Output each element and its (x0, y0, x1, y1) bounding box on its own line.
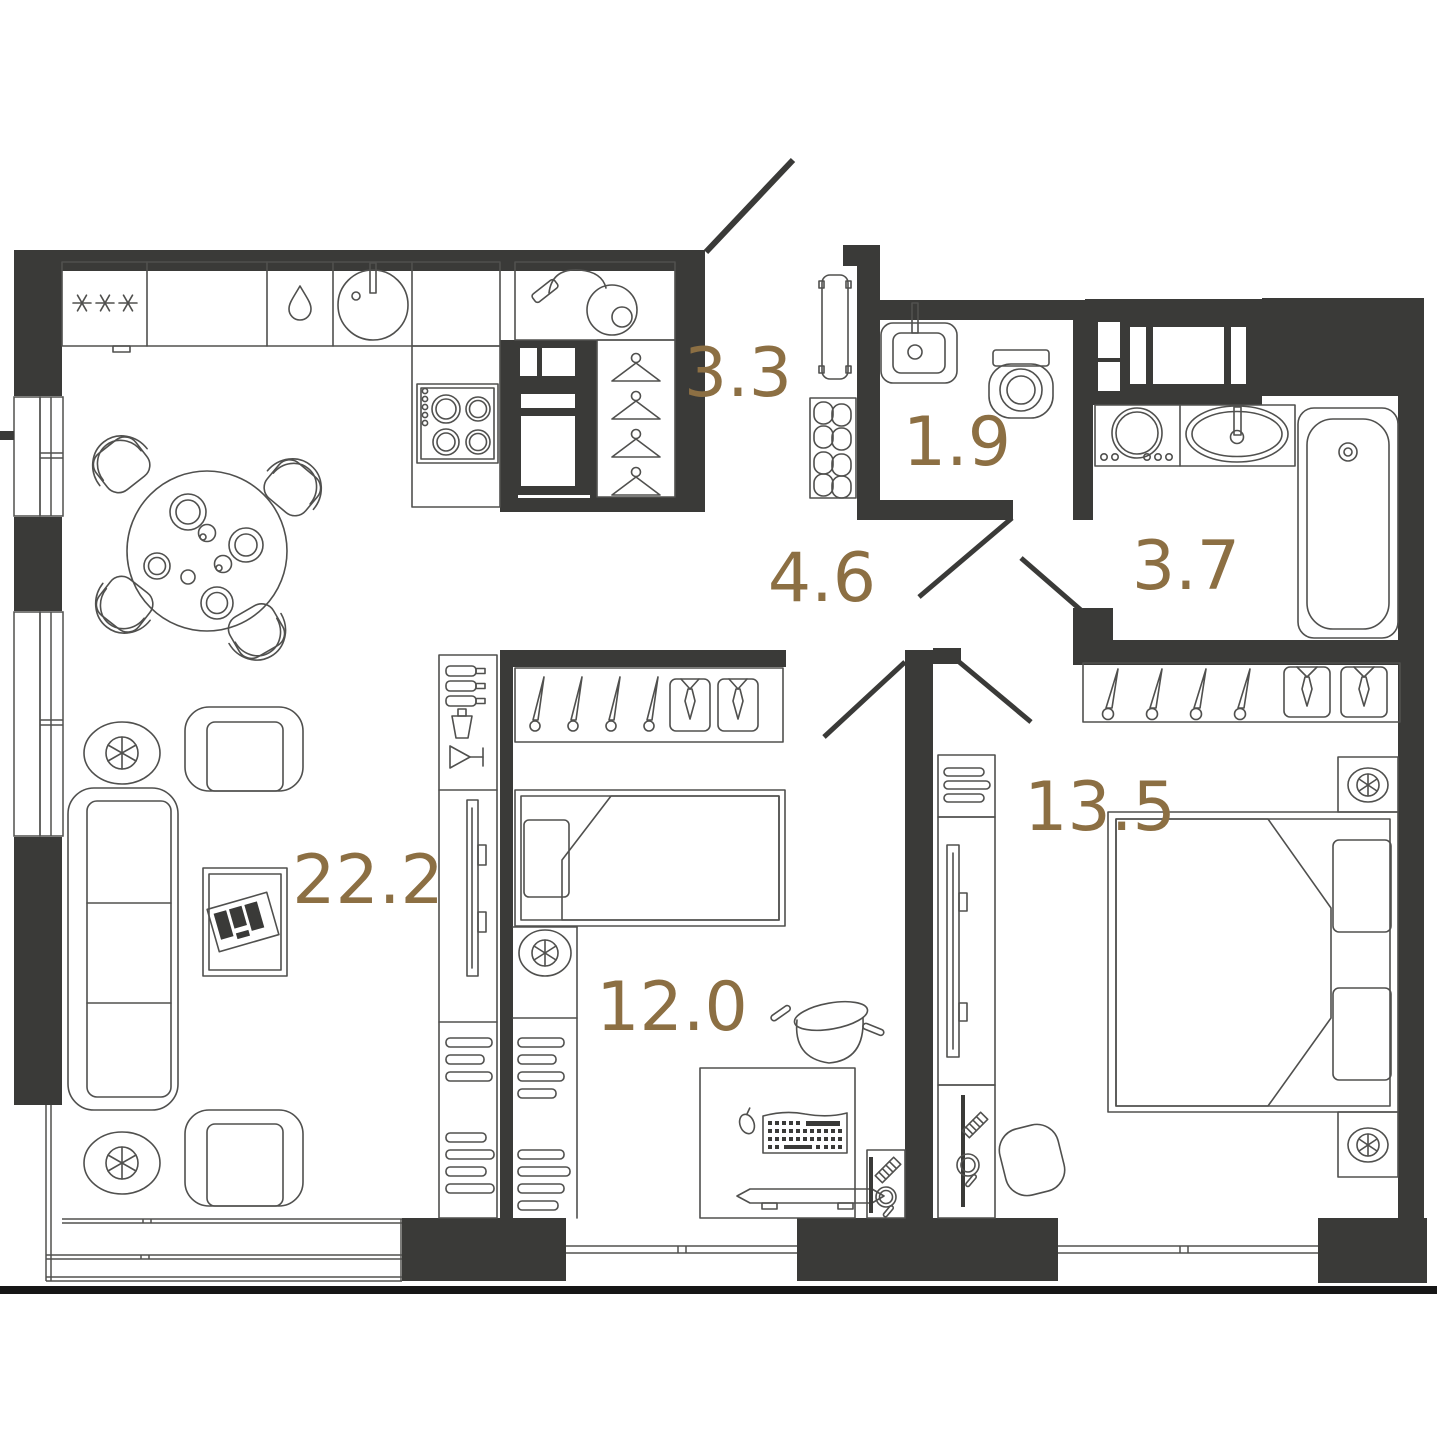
wall-south-c (1318, 1218, 1427, 1283)
entrance-door-leaf (706, 160, 793, 252)
dining-chair (255, 446, 334, 524)
pillow (1333, 988, 1391, 1080)
pillow (1333, 840, 1391, 932)
wall-left (14, 517, 62, 611)
room-label-bathroom: 3.7 (1132, 527, 1240, 606)
niche (1153, 327, 1224, 384)
hand-mirror-icon (957, 1154, 979, 1187)
wall-right (1398, 393, 1424, 1283)
hanger-icon (612, 468, 660, 496)
niche (521, 394, 575, 408)
bedroom1-shelf-column (513, 927, 577, 1218)
newspaper-icon (207, 892, 279, 951)
niche (1130, 327, 1146, 384)
niche (521, 416, 575, 486)
desk-tray (737, 1189, 884, 1209)
wall-bedroom1-west (500, 650, 513, 1218)
snowflake-icon (96, 295, 114, 311)
bedroom1-furniture (513, 668, 905, 1218)
kitchen-sink-icon (338, 263, 408, 340)
room-label-bedroom2: 13.5 (1024, 768, 1175, 847)
wall-bedroom2-post (933, 648, 961, 664)
shelf-bars (446, 1038, 494, 1193)
desk-chair (770, 997, 885, 1063)
hanger-icon (612, 430, 660, 458)
dressing-nook (867, 1150, 905, 1218)
wall-top (14, 250, 705, 271)
wall-tick (0, 431, 14, 440)
bathroom-door-leaf (1021, 558, 1090, 618)
hanger-icon (644, 677, 658, 731)
coffee-table (203, 868, 287, 976)
wc-fixtures (881, 303, 1053, 418)
wc-door-leaf (919, 518, 1012, 597)
wall-closet-bottom (500, 497, 705, 512)
double-bed (1108, 812, 1398, 1112)
plant-icon (84, 1132, 160, 1194)
wall-bedroom2-north (1080, 640, 1400, 663)
wall-left (14, 250, 62, 396)
table-edge (869, 1157, 873, 1213)
nightstand-plant (1338, 757, 1398, 812)
wall-left (14, 837, 62, 1105)
niche (1098, 362, 1120, 391)
niche (518, 495, 590, 498)
room-label-kitchen-living: 22.2 (292, 841, 443, 920)
plate (229, 528, 263, 562)
keyboard-icon (763, 1112, 847, 1153)
slipper-icon (814, 402, 833, 424)
mirror (819, 275, 851, 379)
hanger-icon (568, 677, 582, 731)
shelf-bars (944, 768, 990, 802)
hanger-icon (1147, 669, 1163, 720)
dining-chair (219, 596, 297, 671)
room-labels: 22.2 3.3 1.9 4.6 3.7 12.0 13.5 (292, 334, 1240, 1047)
wall-south-a (402, 1218, 566, 1281)
slipper-icon (832, 476, 851, 498)
wall-wc-jog (843, 245, 880, 266)
hanger-icon (1191, 669, 1207, 720)
window-sill (14, 397, 40, 516)
bedroom1-door-leaf (824, 662, 905, 737)
counter-tab (113, 346, 130, 352)
shelf-bars (518, 1038, 570, 1210)
slipper-icon (832, 454, 851, 476)
martini-glass-icon (450, 746, 483, 768)
wall-wc-west (857, 264, 880, 520)
room-label-corridor: 4.6 (768, 539, 876, 618)
blanket (1116, 819, 1331, 1106)
room-label-wc: 1.9 (903, 403, 1011, 482)
hand-mirror-icon (876, 1187, 896, 1218)
hanger-icon (606, 677, 620, 731)
window-sill (14, 612, 40, 836)
comb-icon (962, 1112, 987, 1137)
wall-wc-south (857, 500, 1013, 520)
bedroom2-furniture (938, 663, 1400, 1218)
single-bed (515, 790, 785, 926)
shaker-icon (452, 709, 472, 738)
hanger-icon (1235, 669, 1251, 720)
tv-unit (439, 655, 497, 1218)
shirt-icon (1341, 667, 1387, 717)
slipper-icon (814, 426, 833, 448)
tv-icon (467, 800, 486, 976)
plant-icon (84, 722, 160, 784)
niche (542, 348, 575, 376)
hallway-wardrobe (597, 340, 675, 497)
tv-icon (947, 845, 967, 1057)
shoe-rack (810, 398, 856, 498)
snowflake-icon (73, 295, 91, 311)
shirt-icon (1284, 667, 1330, 717)
dining-set (80, 423, 334, 671)
armchair (185, 707, 303, 791)
stove-icon (417, 384, 498, 463)
counter-side-column (412, 346, 500, 507)
bedroom2-wardrobe (1083, 663, 1400, 722)
slipper-icon (814, 452, 833, 474)
nightstand-plant (1338, 1112, 1398, 1177)
niche (520, 348, 537, 376)
blanket (562, 796, 779, 920)
dishwasher-drop-icon (289, 286, 311, 320)
slipper-icon (814, 474, 833, 496)
plan-baseline (0, 1286, 1437, 1294)
wall-bedroom1-north (500, 650, 786, 667)
mouse-icon (736, 1108, 758, 1136)
floor-plan-page: 22.2 3.3 1.9 4.6 3.7 12.0 13.5 (0, 0, 1437, 1437)
dining-chair (80, 423, 159, 501)
bathtub-icon (1298, 408, 1398, 638)
armchair (185, 1110, 303, 1206)
plant-icon (519, 930, 571, 976)
shirt-icon (670, 679, 710, 731)
wall-south-b (797, 1218, 1058, 1281)
hanger-icon (612, 392, 660, 420)
bedroom2-chair (995, 1120, 1070, 1200)
hanger-icon (612, 354, 660, 382)
fridge-icon (73, 295, 137, 311)
snowflake-icon (119, 295, 137, 311)
floor-plan-drawing: 22.2 3.3 1.9 4.6 3.7 12.0 13.5 (0, 0, 1437, 1437)
niche (1098, 322, 1120, 358)
slipper-icon (832, 404, 851, 426)
hanger-icon (530, 677, 544, 731)
sofa (68, 788, 178, 1110)
desk (700, 1068, 884, 1218)
shirt-icon (718, 679, 758, 731)
living-room-furniture (68, 655, 497, 1218)
washing-machine-icon (1101, 408, 1172, 460)
table-edge (961, 1095, 965, 1207)
dressing-table (938, 1085, 995, 1218)
vacuum-cleaner-icon (531, 270, 637, 335)
cup (181, 570, 195, 584)
room-label-bedroom1: 12.0 (596, 968, 747, 1047)
wall-bedrooms-divider (905, 650, 933, 1218)
wall-top-right (1262, 298, 1424, 396)
slipper-icon (832, 428, 851, 450)
bedroom2-wall-column (938, 755, 995, 1218)
comb-icon (875, 1157, 900, 1182)
niche (1231, 327, 1246, 384)
hanger-icon (1103, 669, 1119, 720)
bathroom-sink-icon (1186, 406, 1288, 462)
shaft-niches (518, 322, 1246, 498)
bottle-icon (446, 666, 485, 706)
bedroom1-wardrobe (515, 668, 783, 742)
room-label-hallway: 3.3 (684, 334, 792, 413)
bedroom2-door-leaf (958, 661, 1031, 722)
